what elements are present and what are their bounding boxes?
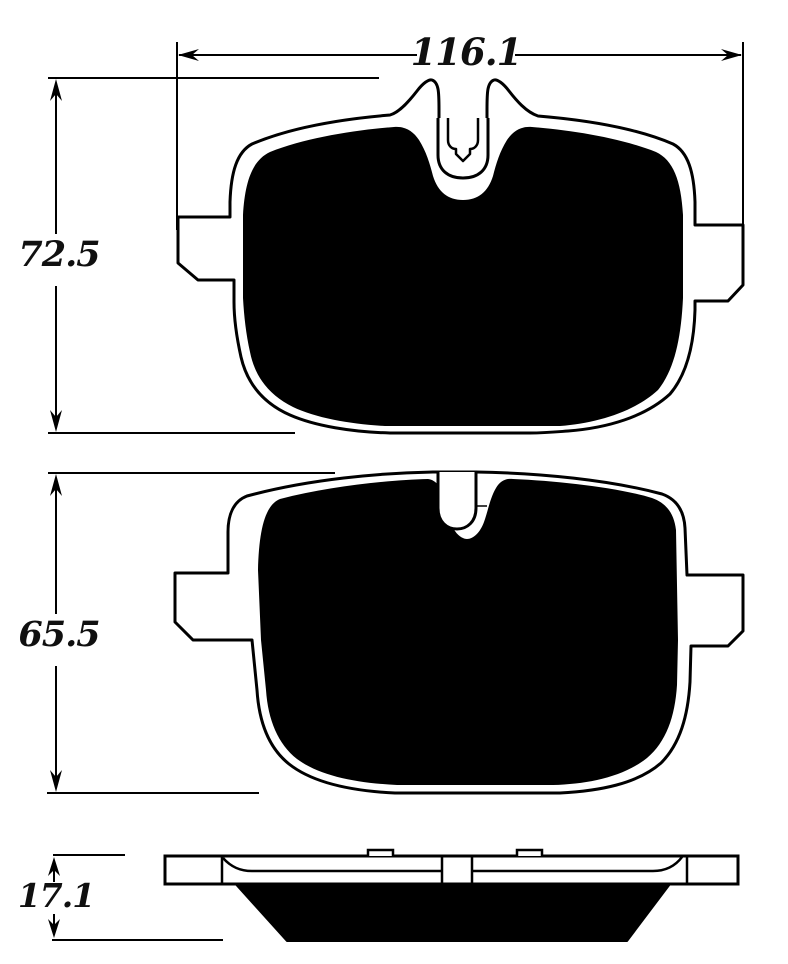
brake-pad-diagram-canvas <box>0 0 788 964</box>
pad2-front-view <box>175 472 743 793</box>
pad2-height-label: 65.5 <box>14 617 104 654</box>
pad1-height-label: 72.5 <box>14 237 104 274</box>
side-tab-left <box>368 850 393 856</box>
pad1-front-view <box>178 80 743 433</box>
side-profile-view <box>165 850 738 941</box>
pad2-retainer-clip <box>438 472 476 529</box>
overall-width-label: 116.1 <box>406 33 526 72</box>
side-tab-right <box>517 850 542 856</box>
thickness-label: 17.1 <box>12 879 100 914</box>
side-friction-material <box>232 880 673 941</box>
technical-drawing: 116.1 72.5 65.5 17.1 <box>0 0 788 964</box>
